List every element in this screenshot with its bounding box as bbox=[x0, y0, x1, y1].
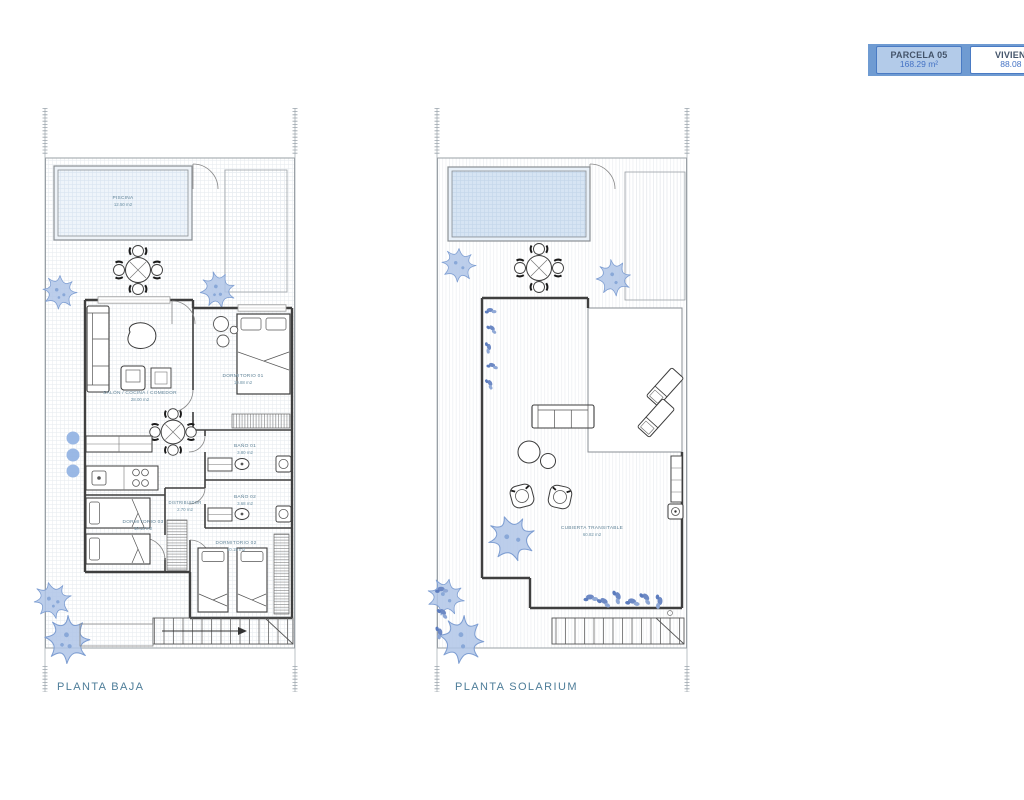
parcela-box: PARCELA 05 168.29 m² bbox=[876, 46, 962, 74]
dorm02-name: DORMITORIO 02 bbox=[215, 540, 256, 546]
cubierta-area: 60.82 m2 bbox=[583, 532, 602, 537]
distribuidor-name: DISTRIBUIDOR bbox=[168, 500, 201, 505]
plan-solarium-caption: PLANTA SOLARIUM bbox=[455, 681, 578, 693]
stepping-stones bbox=[67, 432, 80, 478]
vivienda-area: 88.08 m² bbox=[1000, 60, 1024, 70]
bano01-name: BAÑO 01 bbox=[234, 442, 256, 449]
side-yard-strip bbox=[625, 172, 685, 300]
bano02-area: 3.68 m2 bbox=[237, 501, 253, 506]
pool-name-label: PISCINA bbox=[113, 195, 134, 201]
bano02-name: BAÑO 02 bbox=[234, 493, 256, 500]
bano01-area: 3.80 m2 bbox=[237, 450, 253, 455]
armchair bbox=[121, 366, 145, 390]
single-bed bbox=[237, 548, 267, 612]
parcela-area: 168.29 m² bbox=[900, 60, 938, 70]
dorm01-name: DORMITORIO 01 bbox=[222, 373, 263, 379]
salon-area: 28.00 m2 bbox=[131, 397, 150, 402]
cubierta-name: CUBIERTA TRANSITABLE bbox=[561, 525, 623, 531]
plan-solarium-drawing: CUBIERTA TRANSITABLE 60.82 m2 bbox=[432, 100, 692, 700]
sofa bbox=[87, 306, 109, 392]
dorm03-name: DORMITORIO 03 bbox=[122, 519, 163, 525]
single-bed bbox=[86, 534, 150, 564]
plan-baja-drawing: PISCINA 12.50 m2 bbox=[40, 100, 300, 700]
pool bbox=[448, 167, 590, 241]
plan-baja-caption: PLANTA BAJA bbox=[57, 681, 144, 693]
dorm01-area: 10.88 m2 bbox=[234, 380, 253, 385]
vivienda-box: VIVIENDA 88.08 m² bbox=[970, 46, 1024, 74]
armchair bbox=[547, 484, 573, 510]
salon-name: SALÓN / COCINA / COMEDOR bbox=[103, 389, 177, 396]
pool: PISCINA 12.50 m2 bbox=[54, 166, 192, 240]
dorm02-area: 10.15 m2 bbox=[227, 547, 246, 552]
pool-area-label: 12.50 m2 bbox=[114, 202, 133, 207]
dorm03-area: 10.13 m2 bbox=[134, 526, 153, 531]
title-bar: PARCELA 05 168.29 m² VIVIENDA 88.08 m² bbox=[868, 44, 1024, 76]
coffee-table bbox=[128, 323, 156, 349]
side-table bbox=[151, 368, 171, 388]
distribuidor-area: 2.70 m2 bbox=[177, 507, 193, 512]
outdoor-sofa bbox=[532, 405, 594, 428]
side-yard-strip bbox=[225, 170, 287, 292]
single-bed bbox=[198, 548, 228, 612]
floorplan-sheet: PARCELA 05 168.29 m² VIVIENDA 88.08 m² bbox=[0, 0, 1024, 800]
